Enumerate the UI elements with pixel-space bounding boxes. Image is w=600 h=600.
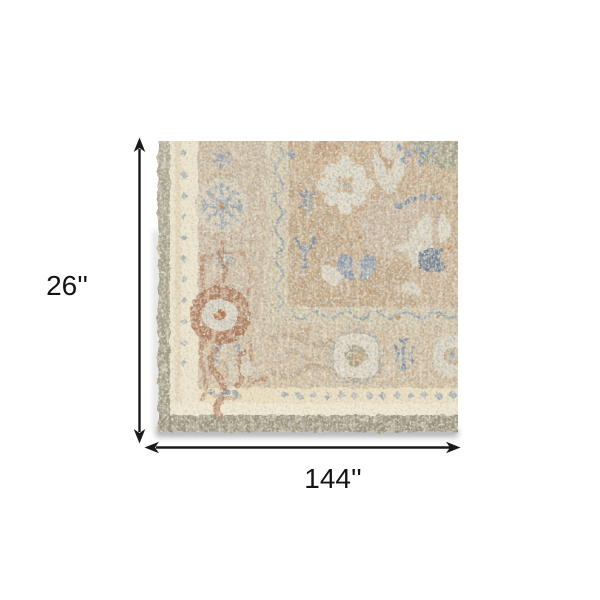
svg-text:26'': 26'' — [46, 270, 88, 301]
svg-text:144'': 144'' — [304, 463, 361, 494]
